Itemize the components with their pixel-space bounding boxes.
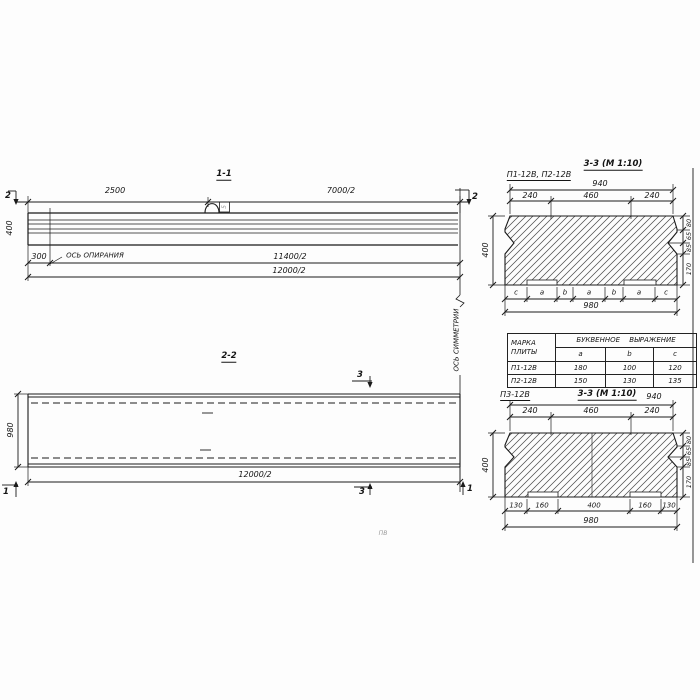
lower-dim-940: 940 [646,393,661,401]
section-1-1-title: 1-1 [216,170,231,181]
upper-dim-65: 65 [686,232,693,240]
cell-p1-b: 100 [606,362,654,375]
cut-mark-1-right: 1 [467,485,473,494]
cross-section-upper-body [505,216,677,285]
dim-2500: 2500 [105,187,125,195]
table-col-b: b [606,348,654,362]
lower-dim-400: 400 [482,457,490,472]
upper-section-marks-label: П1-12В, П2-12В [507,171,571,181]
table-col-a: a [556,348,606,362]
loop-flag-label: 5 [222,205,228,209]
dim-11400-2: 11400/2 [273,253,306,261]
table-row: П2-12В 150 130 135 [508,375,697,388]
lower-section-title: 3-3 (М 1:10) [578,390,637,401]
upper-dim-85: 85 [686,244,693,252]
lower-dim-460: 460 [583,407,598,415]
upper-section-title: 3-3 (М 1:10) [584,160,643,171]
cell-mark-p1: П1-12В [508,362,556,375]
lower-dim-170: 170 [686,476,693,488]
cut-mark-2-left: 2 [5,192,11,201]
cell-p2-a: 150 [556,375,606,388]
cell-p2-c: 135 [654,375,697,388]
lower-dim-400-mid: 400 [587,503,600,510]
lower-dim-240-left: 240 [522,407,537,415]
lower-dim-65: 65 [686,447,693,455]
cell-mark-p2: П2-12В [508,375,556,388]
upper-dim-240-right: 240 [644,192,659,200]
dim-12000-2-plan: 12000/2 [238,471,271,479]
cut-mark-3-top: 3 [357,371,363,380]
lower-dim-130-right: 130 [662,503,675,510]
dim-height-400: 400 [6,220,14,235]
letter-seg-a1: a [540,290,544,297]
dim-300: 300 [31,253,46,261]
upper-dim-940: 940 [592,180,607,188]
letter-seg-b1: b [563,290,567,297]
bearing-axis-label: ОСЬ ОПИРАНИЯ [66,253,124,260]
dim-7000-2: 7000/2 [327,187,355,195]
lower-section-mark-label: П3-12В [500,391,530,401]
cell-p2-b: 130 [606,375,654,388]
break-symbol [456,295,464,307]
upper-dim-240-left: 240 [522,192,537,200]
cut-mark-1-left: 1 [3,488,9,497]
lower-dim-160-left: 160 [535,503,548,510]
upper-dim-460: 460 [583,192,598,200]
dim-height-980: 980 [7,422,15,437]
engineering-drawing-sheet: 1-1 2500 7000/2 2 2 400 300 ОСЬ ОПИРАНИЯ… [0,0,700,700]
lower-dim-80: 80 [686,436,693,444]
upper-dim-170: 170 [686,263,693,275]
lower-dim-240-right: 240 [644,407,659,415]
table-row: П1-12В 180 100 120 [508,362,697,375]
plate-spec-table: МАРКА ПЛИТЫ БУКВЕННОЕ ВЫРАЖЕНИЕ a b c П1… [507,333,697,388]
table-header-group: БУКВЕННОЕ ВЫРАЖЕНИЕ [556,334,697,348]
upper-dim-80: 80 [686,219,693,227]
cut-mark-3-bottom: 3 [359,488,365,497]
lower-dim-130-left: 130 [509,503,522,510]
upper-dim-400: 400 [482,242,490,257]
letter-seg-a3: a [637,290,641,297]
lower-dim-85: 85 [686,458,693,466]
cell-p1-c: 120 [654,362,697,375]
cross-section-lower-body [505,433,677,497]
letter-seg-c1: c [514,290,518,297]
lower-dim-980: 980 [583,517,598,525]
lifting-loop-icon [205,204,219,213]
letter-seg-c2: c [664,290,668,297]
section-2-2-title: 2-2 [221,352,236,363]
symmetry-axis-label: ОСЬ СИММЕТРИИ [454,308,461,371]
stray-print-artifact: ПВ [379,531,388,537]
lower-dim-160-right: 160 [638,503,651,510]
table-header-mark-line2: ПЛИТЫ [511,348,537,356]
table-header-mark-line1: МАРКА [511,339,536,347]
table-col-c: c [654,348,697,362]
cut-mark-2-right: 2 [472,193,478,202]
table-header-mark: МАРКА ПЛИТЫ [508,334,556,362]
letter-seg-b2: b [612,290,616,297]
cell-p1-a: 180 [556,362,606,375]
upper-dim-980: 980 [583,302,598,310]
dim-12000-2-elevation: 12000/2 [272,267,305,275]
letter-seg-a2: a [587,290,591,297]
